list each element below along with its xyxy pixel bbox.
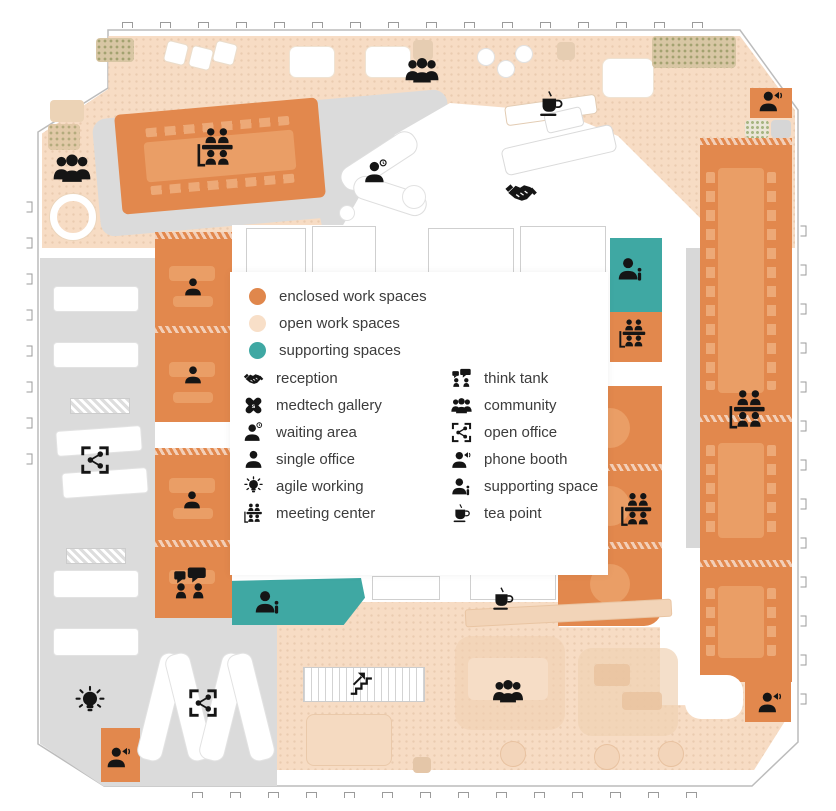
floor-plan: enclosed work spacesopen work spacessupp… bbox=[0, 0, 836, 811]
meeting-center-icon bbox=[195, 127, 237, 169]
window-tick bbox=[801, 616, 807, 627]
legend-item-think-tank: think tank bbox=[438, 365, 608, 392]
cabinet bbox=[173, 296, 213, 307]
window-tick bbox=[616, 22, 627, 28]
window-tick bbox=[540, 22, 551, 28]
phone-booth-icon bbox=[446, 449, 476, 470]
window-tick bbox=[801, 460, 807, 471]
legend-swatch-supporting bbox=[249, 342, 266, 359]
legend-item-tea-point: tea point bbox=[438, 500, 608, 527]
legend-label: phone booth bbox=[484, 451, 567, 468]
long-table-topright bbox=[602, 58, 654, 98]
window-tick bbox=[801, 304, 807, 315]
supporting-space-icon bbox=[254, 588, 282, 616]
phone-booth-icon bbox=[757, 689, 783, 715]
legend-item-agile-working: agile working bbox=[230, 473, 438, 500]
legend-swatch-open bbox=[249, 315, 266, 332]
phone-booth-icon bbox=[758, 88, 784, 114]
window-tick bbox=[27, 454, 33, 465]
legend-label: waiting area bbox=[276, 424, 357, 441]
legend-label: meeting center bbox=[276, 505, 375, 522]
legend-category: supporting spaces bbox=[230, 337, 608, 364]
supporting-space-icon bbox=[617, 255, 645, 283]
stairs-icon bbox=[349, 670, 376, 697]
x-table bbox=[500, 741, 526, 767]
window-tick bbox=[686, 792, 697, 798]
desk-bank bbox=[53, 628, 139, 656]
agile-working-icon bbox=[74, 686, 107, 719]
tea-point-icon bbox=[490, 586, 516, 612]
storage-hatched bbox=[66, 548, 126, 564]
desk-bank bbox=[53, 342, 139, 368]
window-tick bbox=[160, 22, 171, 28]
single-office-icon bbox=[182, 490, 203, 511]
lounge-pouf-1 bbox=[339, 205, 355, 221]
window-tick bbox=[502, 22, 513, 28]
legend-item-waiting-area: waiting area bbox=[230, 419, 438, 446]
zone-office-column-gap bbox=[155, 420, 233, 448]
legend-swatch-enclosed bbox=[249, 288, 266, 305]
single-office-icon bbox=[238, 449, 268, 470]
window-tick bbox=[458, 792, 469, 798]
window-tick bbox=[230, 792, 241, 798]
window-tick bbox=[306, 792, 317, 798]
chairs-col bbox=[706, 172, 715, 390]
reception-icon bbox=[238, 368, 268, 389]
svg-text:s: s bbox=[251, 403, 255, 410]
meeting-center-icon bbox=[619, 492, 655, 528]
conference-table bbox=[718, 443, 764, 538]
window-tick bbox=[236, 22, 247, 28]
legend-item-single-office: single office bbox=[230, 446, 438, 473]
planting-topleft bbox=[96, 38, 134, 62]
legend-item-supporting-space: supporting space bbox=[438, 473, 608, 500]
sketch-table bbox=[622, 692, 662, 710]
legend-item-open-office: open office bbox=[438, 419, 608, 446]
supporting-space-icon bbox=[446, 476, 476, 497]
chairs-col bbox=[706, 445, 715, 535]
room-right-2 bbox=[700, 415, 792, 560]
think-tank-icon bbox=[172, 566, 208, 602]
core-room-1 bbox=[246, 228, 306, 278]
window-tick bbox=[692, 22, 703, 28]
window-tick bbox=[801, 343, 807, 354]
single-office-icon bbox=[183, 365, 204, 386]
waiting-area-icon bbox=[363, 159, 389, 185]
conference-table bbox=[718, 168, 764, 393]
window-tick bbox=[496, 792, 507, 798]
core-room-6 bbox=[372, 576, 440, 600]
legend-category: enclosed work spaces bbox=[230, 283, 608, 310]
window-tick bbox=[268, 792, 279, 798]
window-tick bbox=[312, 22, 323, 28]
lounge-chair-2 bbox=[497, 60, 515, 78]
window-tick bbox=[801, 265, 807, 276]
open-office-icon bbox=[446, 422, 476, 443]
waiting-area-icon bbox=[238, 422, 268, 443]
community-icon bbox=[405, 53, 439, 87]
legend-label: community bbox=[484, 397, 557, 414]
office-column-upper bbox=[155, 232, 232, 422]
window-tick bbox=[122, 22, 133, 28]
think-tank-icon bbox=[446, 368, 476, 389]
community-icon bbox=[53, 149, 91, 187]
legend-label: reception bbox=[276, 370, 338, 387]
planting-topright bbox=[652, 36, 736, 68]
open-office-icon bbox=[80, 445, 110, 475]
desk-bank bbox=[53, 570, 139, 598]
table-group-1 bbox=[289, 46, 335, 78]
window-tick bbox=[344, 792, 355, 798]
reception-icon bbox=[504, 175, 538, 209]
legend-label: enclosed work spaces bbox=[279, 288, 427, 305]
legend-label: open office bbox=[484, 424, 557, 441]
window-tick bbox=[27, 346, 33, 357]
plant-strip-gray bbox=[771, 120, 791, 138]
tea-point-icon bbox=[446, 503, 476, 524]
room-right-3 bbox=[700, 560, 792, 682]
chairs-col bbox=[767, 445, 776, 535]
storage-block-2 bbox=[557, 42, 575, 60]
legend-label: medtech gallery bbox=[276, 397, 382, 414]
legend-items: receptionsmedtech gallerywaiting areasin… bbox=[230, 365, 608, 527]
single-office-icon bbox=[183, 277, 204, 298]
window-tick bbox=[27, 274, 33, 285]
legend-categories: enclosed work spacesopen work spacessupp… bbox=[230, 283, 608, 364]
window-tick bbox=[464, 22, 475, 28]
window-tick bbox=[426, 22, 437, 28]
lounge-chair-3 bbox=[515, 45, 533, 63]
window-tick bbox=[420, 792, 431, 798]
community-icon bbox=[493, 676, 524, 707]
community-icon bbox=[446, 395, 476, 416]
lounge-chair-1 bbox=[477, 48, 495, 66]
window-tick bbox=[534, 792, 545, 798]
meeting-center-icon bbox=[727, 389, 769, 431]
window-tick bbox=[27, 418, 33, 429]
window-tick bbox=[801, 499, 807, 510]
window-tick bbox=[578, 22, 589, 28]
window-tick bbox=[648, 792, 659, 798]
window-tick bbox=[801, 538, 807, 549]
core-room-3 bbox=[428, 228, 514, 278]
tea-point-icon bbox=[537, 90, 566, 119]
x-table bbox=[594, 744, 620, 770]
window-tick bbox=[801, 655, 807, 666]
legend-label: tea point bbox=[484, 505, 542, 522]
window-tick bbox=[388, 22, 399, 28]
legend-item-medtech-gallery: smedtech gallery bbox=[230, 392, 438, 419]
window-tick bbox=[27, 202, 33, 213]
window-tick bbox=[350, 22, 361, 28]
round-table-left bbox=[50, 194, 96, 240]
window-tick bbox=[27, 382, 33, 393]
legend-label: supporting spaces bbox=[279, 342, 401, 359]
legend-label: single office bbox=[276, 451, 355, 468]
legend-label: open work spaces bbox=[279, 315, 400, 332]
legend-label: supporting space bbox=[484, 478, 598, 495]
window-tick bbox=[801, 382, 807, 393]
window-tick bbox=[192, 792, 203, 798]
walkway-corner bbox=[685, 675, 743, 719]
legend-item-phone-booth: phone booth bbox=[438, 446, 608, 473]
phone-booth-icon bbox=[106, 744, 132, 770]
cabinet bbox=[173, 392, 213, 403]
storage-hatched bbox=[70, 398, 130, 414]
sketch-table bbox=[594, 664, 630, 686]
open-office-icon bbox=[188, 688, 218, 718]
window-tick bbox=[801, 421, 807, 432]
long-table-bottom bbox=[306, 714, 392, 766]
legend-item-reception: reception bbox=[230, 365, 438, 392]
window-tick bbox=[27, 310, 33, 321]
side-desk-left bbox=[50, 100, 84, 122]
legend-item-meeting-center: meeting center bbox=[230, 500, 438, 527]
chairs-col bbox=[706, 588, 715, 656]
window-tick bbox=[198, 22, 209, 28]
chairs-col bbox=[767, 172, 776, 390]
window-tick bbox=[654, 22, 665, 28]
plant-strip-green bbox=[745, 120, 769, 138]
agile-working-icon bbox=[238, 476, 268, 497]
legend-category: open work spaces bbox=[230, 310, 608, 337]
lounge-pouf-2 bbox=[402, 185, 426, 209]
desk-bank bbox=[53, 286, 139, 312]
window-tick bbox=[27, 238, 33, 249]
legend-item-community: community bbox=[438, 392, 608, 419]
window-tick bbox=[382, 792, 393, 798]
conference-table bbox=[718, 586, 764, 658]
legend-label: agile working bbox=[276, 478, 364, 495]
window-tick bbox=[801, 694, 807, 705]
meeting-center-icon bbox=[618, 319, 649, 350]
window-tick bbox=[801, 226, 807, 237]
chairs-col bbox=[767, 588, 776, 656]
room-right-1 bbox=[700, 138, 792, 415]
window-tick bbox=[610, 792, 621, 798]
window-tick bbox=[572, 792, 583, 798]
window-tick bbox=[274, 22, 285, 28]
meeting-center-icon bbox=[238, 503, 268, 524]
storage-block-3 bbox=[413, 757, 431, 773]
window-tick bbox=[801, 577, 807, 588]
legend: enclosed work spacesopen work spacessupp… bbox=[230, 272, 608, 575]
legend-label: think tank bbox=[484, 370, 548, 387]
x-table bbox=[658, 741, 684, 767]
zone-supporting-main bbox=[232, 578, 365, 625]
medtech-gallery-icon: s bbox=[238, 395, 268, 416]
planting-left bbox=[48, 124, 80, 150]
